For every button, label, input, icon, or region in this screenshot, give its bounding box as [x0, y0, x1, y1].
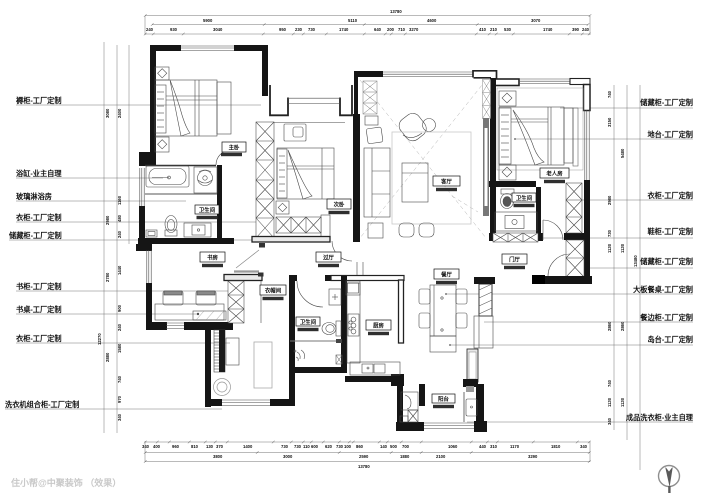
svg-text:240: 240 [146, 27, 154, 32]
svg-text:3290: 3290 [528, 454, 538, 459]
svg-text:储藏柜-工厂定制: 储藏柜-工厂定制 [639, 98, 693, 107]
svg-text:480: 480 [117, 214, 122, 222]
svg-text:餐边柜-工厂定制: 餐边柜-工厂定制 [639, 313, 693, 322]
svg-text:1060: 1060 [448, 444, 458, 449]
svg-text:13780: 13780 [358, 464, 370, 469]
svg-text:1740: 1740 [339, 27, 349, 32]
svg-text:阳台: 阳台 [438, 395, 449, 403]
svg-text:100: 100 [344, 444, 352, 449]
svg-text:390: 390 [572, 27, 580, 32]
svg-text:740: 740 [117, 375, 122, 383]
svg-text:810: 810 [191, 444, 199, 449]
svg-text:240: 240 [117, 323, 122, 331]
svg-text:储藏柜-工厂定制: 储藏柜-工厂定制 [8, 231, 62, 240]
svg-text:400: 400 [153, 444, 161, 449]
svg-text:410: 410 [479, 27, 487, 32]
svg-text:1130: 1130 [620, 397, 625, 407]
svg-text:成品洗衣柜-业主自理: 成品洗衣柜-业主自理 [626, 413, 694, 422]
svg-text:860: 860 [356, 444, 364, 449]
svg-text:5110: 5110 [348, 18, 358, 23]
svg-text:3070: 3070 [531, 18, 541, 23]
svg-text:740: 740 [607, 90, 612, 98]
svg-text:340: 340 [607, 417, 612, 425]
svg-text:730: 730 [336, 444, 344, 449]
svg-text:2860: 2860 [620, 321, 625, 331]
svg-text:240: 240 [117, 230, 122, 238]
svg-text:500: 500 [390, 444, 398, 449]
svg-text:2590: 2590 [359, 454, 369, 459]
svg-text:930: 930 [170, 27, 178, 32]
svg-text:710: 710 [398, 27, 406, 32]
svg-text:卫生间: 卫生间 [300, 318, 317, 326]
svg-text:客厅: 客厅 [441, 178, 452, 186]
svg-text:1400: 1400 [243, 444, 253, 449]
svg-text:4600: 4600 [427, 18, 437, 23]
svg-text:740: 740 [607, 379, 612, 387]
svg-text:3800: 3800 [213, 454, 223, 459]
svg-text:地台-工厂定制: 地台-工厂定制 [647, 130, 693, 139]
svg-text:210: 210 [490, 27, 498, 32]
svg-text:200: 200 [387, 27, 395, 32]
svg-text:衣柜-工厂定制: 衣柜-工厂定制 [16, 213, 62, 222]
svg-text:3040: 3040 [213, 27, 223, 32]
svg-text:1130: 1130 [620, 243, 625, 253]
svg-text:370: 370 [216, 444, 224, 449]
svg-text:140: 140 [380, 444, 388, 449]
svg-text:1880: 1880 [400, 454, 410, 459]
svg-text:2980: 2980 [105, 215, 110, 225]
svg-text:530: 530 [504, 27, 512, 32]
svg-text:3080: 3080 [105, 108, 110, 118]
svg-text:340: 340 [580, 444, 588, 449]
svg-text:730: 730 [294, 444, 302, 449]
svg-text:620: 620 [325, 444, 333, 449]
svg-text:厨房: 厨房 [373, 322, 384, 330]
svg-text:960: 960 [172, 444, 180, 449]
svg-text:730: 730 [281, 444, 289, 449]
svg-text:卫生间: 卫生间 [516, 194, 533, 202]
svg-text:浴缸-业主自理: 浴缸-业主自理 [16, 169, 62, 178]
svg-text:13780: 13780 [390, 9, 402, 14]
svg-text:730: 730 [607, 229, 612, 237]
svg-text:1580: 1580 [117, 343, 122, 353]
svg-text:老人房: 老人房 [546, 170, 563, 178]
svg-text:310: 310 [490, 444, 498, 449]
svg-text:住小帮@中聚装饰 （效果）: 住小帮@中聚装饰 （效果） [11, 477, 121, 488]
svg-text:1130: 1130 [607, 397, 612, 407]
svg-text:衣柜-工厂定制: 衣柜-工厂定制 [647, 191, 693, 200]
svg-text:640: 640 [374, 27, 382, 32]
svg-text:2780: 2780 [105, 272, 110, 282]
svg-text:洗衣机组合柜-工厂定制: 洗衣机组合柜-工厂定制 [5, 400, 79, 409]
svg-text:2880: 2880 [105, 352, 110, 362]
svg-text:玻璃淋浴房: 玻璃淋浴房 [16, 192, 52, 201]
svg-text:主卧: 主卧 [229, 144, 240, 152]
svg-text:230: 230 [295, 27, 303, 32]
svg-text:次卧: 次卧 [334, 201, 345, 209]
svg-text:门厅: 门厅 [509, 256, 520, 264]
svg-text:衣柜-工厂定制: 衣柜-工厂定制 [16, 334, 62, 343]
svg-text:1740: 1740 [543, 27, 553, 32]
svg-text:340: 340 [117, 413, 122, 421]
svg-text:440: 440 [479, 444, 487, 449]
svg-text:衣帽间: 衣帽间 [265, 287, 282, 295]
svg-text:褥柜-工厂定制: 褥柜-工厂定制 [15, 96, 62, 105]
svg-text:1170: 1170 [510, 444, 520, 449]
svg-text:储藏柜-工厂定制: 储藏柜-工厂定制 [639, 257, 693, 266]
svg-text:5900: 5900 [203, 18, 213, 23]
svg-text:卫生间: 卫生间 [199, 206, 216, 214]
svg-text:970: 970 [117, 395, 122, 403]
svg-text:600: 600 [311, 444, 319, 449]
svg-text:700: 700 [402, 444, 410, 449]
svg-text:大板餐桌-工厂定制: 大板餐桌-工厂定制 [633, 285, 693, 294]
svg-text:730: 730 [308, 27, 316, 32]
svg-text:130: 130 [206, 444, 214, 449]
svg-text:950: 950 [279, 27, 287, 32]
svg-text:5480: 5480 [620, 148, 625, 158]
svg-text:2980: 2980 [607, 195, 612, 205]
svg-text:2100: 2100 [436, 454, 446, 459]
svg-text:3000: 3000 [283, 454, 293, 459]
svg-text:12270: 12270 [97, 333, 102, 345]
svg-text:鞋柜-工厂定制: 鞋柜-工厂定制 [647, 227, 693, 236]
svg-text:餐厅: 餐厅 [441, 271, 452, 279]
svg-text:1130: 1130 [607, 243, 612, 253]
svg-text:3150: 3150 [607, 117, 612, 127]
svg-text:1160: 1160 [117, 195, 122, 205]
svg-text:书柜-工厂定制: 书柜-工厂定制 [16, 282, 62, 291]
svg-text:240: 240 [582, 27, 590, 32]
svg-text:340: 340 [142, 444, 150, 449]
svg-text:13480: 13480 [633, 255, 638, 267]
svg-text:110: 110 [303, 444, 310, 449]
svg-text:1440: 1440 [117, 265, 122, 275]
svg-text:2860: 2860 [607, 321, 612, 331]
svg-text:书桌-工厂定制: 书桌-工厂定制 [16, 305, 62, 314]
svg-text:书房: 书房 [207, 254, 218, 262]
svg-text:岛台-工厂定制: 岛台-工厂定制 [647, 335, 693, 344]
svg-text:1810: 1810 [551, 444, 561, 449]
svg-text:3270: 3270 [409, 27, 419, 32]
svg-text:2400: 2400 [117, 108, 122, 118]
svg-text:900: 900 [117, 304, 122, 312]
svg-text:过厅: 过厅 [323, 254, 334, 262]
